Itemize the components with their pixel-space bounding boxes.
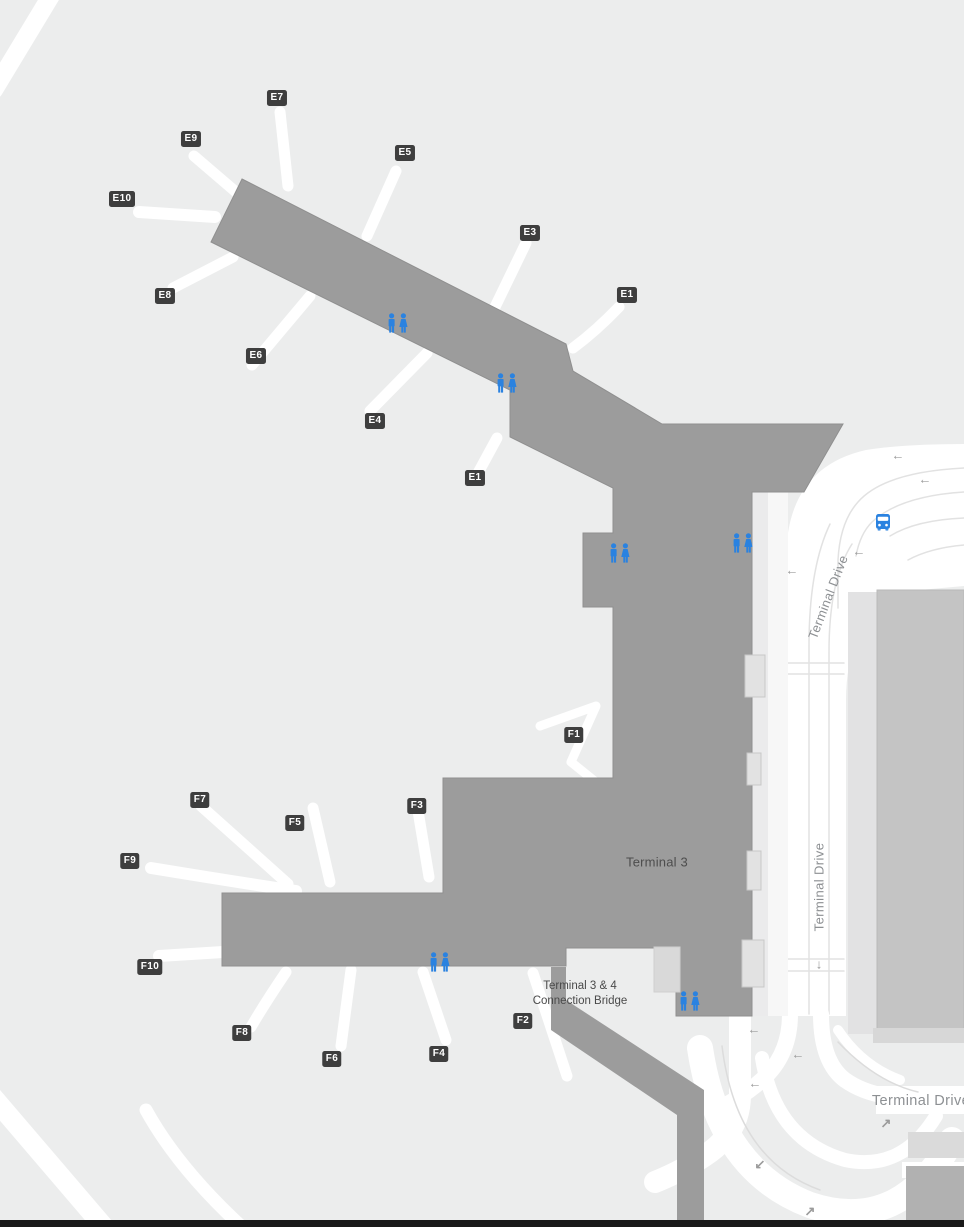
gate-label-e1[interactable]: E1	[465, 470, 485, 486]
airport-terminal-map: Terminal 3 Terminal 3 & 4 Connection Bri…	[0, 0, 964, 1227]
terminal-3-label: Terminal 3	[626, 855, 688, 870]
gate-label-f2[interactable]: F2	[513, 1013, 532, 1029]
traffic-direction-arrow: ↙	[755, 1158, 766, 1171]
road-label-terminal-drive: Terminal Drive	[872, 1093, 964, 1109]
gate-label-f6[interactable]: F6	[322, 1051, 341, 1067]
road-median	[848, 592, 877, 1034]
gate-label-e1[interactable]: E1	[617, 287, 637, 303]
gate-label-e6[interactable]: E6	[246, 348, 266, 364]
gate-label-e3[interactable]: E3	[520, 225, 540, 241]
traffic-direction-arrow: ↓	[816, 958, 823, 971]
bridge-label-line2: Connection Bridge	[533, 995, 628, 1007]
bridge-landing	[654, 947, 680, 992]
traffic-direction-arrow: ←	[892, 449, 905, 462]
restroom-icon[interactable]	[732, 533, 754, 553]
gate-label-e8[interactable]: E8	[155, 288, 175, 304]
gate-label-f5[interactable]: F5	[285, 815, 304, 831]
bottom-right-structure-dark	[906, 1166, 964, 1222]
traffic-direction-arrow: ←	[919, 473, 932, 486]
road-label-terminal-drive: Terminal Drive	[812, 843, 827, 932]
restroom-icon[interactable]	[429, 952, 451, 972]
gate-label-f8[interactable]: F8	[232, 1025, 251, 1041]
gate-label-f4[interactable]: F4	[429, 1046, 448, 1062]
gate-label-e10[interactable]: E10	[109, 191, 135, 207]
restroom-icon[interactable]	[496, 373, 518, 393]
bottom-right-structure-light	[908, 1132, 964, 1158]
gate-label-f10[interactable]: F10	[137, 959, 162, 975]
bridge-label-line1: Terminal 3 & 4	[543, 980, 617, 992]
traffic-direction-arrow: ←	[749, 1077, 762, 1090]
traffic-direction-arrow: ↗	[881, 1117, 892, 1130]
gate-label-f3[interactable]: F3	[407, 798, 426, 814]
parking-garage	[877, 590, 964, 1038]
gate-label-e4[interactable]: E4	[365, 413, 385, 429]
gate-label-f1[interactable]: F1	[564, 727, 583, 743]
bus-stop-icon[interactable]	[876, 514, 891, 531]
gate-label-e5[interactable]: E5	[395, 145, 415, 161]
gate-label-f7[interactable]: F7	[190, 792, 209, 808]
gate-label-f9[interactable]: F9	[120, 853, 139, 869]
traffic-direction-arrow: ←	[786, 564, 799, 577]
gate-label-e9[interactable]: E9	[181, 131, 201, 147]
restroom-icon[interactable]	[387, 313, 409, 333]
traffic-direction-arrow: ←	[748, 1023, 761, 1036]
restroom-icon[interactable]	[609, 543, 631, 563]
garage-base-strip	[873, 1028, 964, 1043]
gate-label-e7[interactable]: E7	[267, 90, 287, 106]
traffic-direction-arrow: ←	[853, 545, 866, 558]
traffic-direction-arrow: ↗	[805, 1205, 816, 1218]
restroom-icon[interactable]	[679, 991, 701, 1011]
connection-bridge-label: Terminal 3 & 4 Connection Bridge	[533, 979, 628, 1009]
map-bottom-border	[0, 1220, 964, 1227]
traffic-direction-arrow: ←	[792, 1048, 805, 1061]
